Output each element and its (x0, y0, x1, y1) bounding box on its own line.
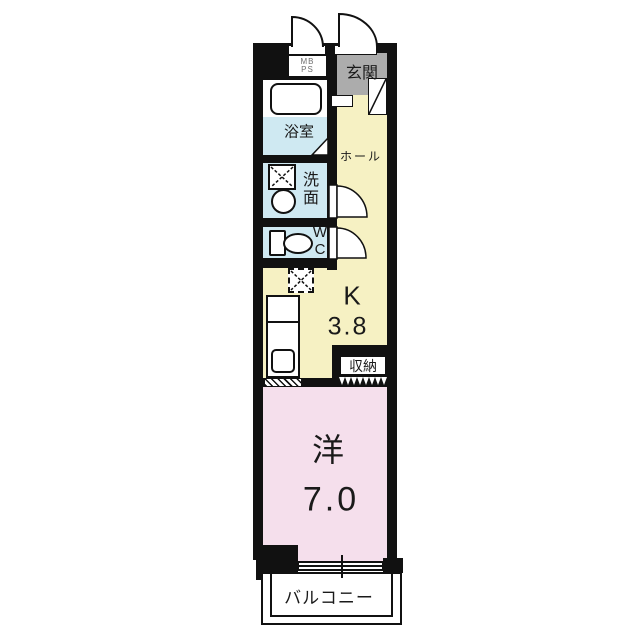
wc-label: W C (313, 224, 327, 258)
entrance-label: 玄関 (346, 59, 378, 83)
washroom-label-char1: 洗 (303, 172, 319, 190)
wc-door-swing-icon (337, 228, 366, 258)
bathroom-label: 浴室 (284, 121, 314, 142)
washroom-door-panel (329, 185, 337, 218)
western-room-size-label: 7.0 (303, 481, 359, 520)
bathroom-door-icon (312, 138, 328, 155)
washroom-label: 洗 面 (303, 172, 319, 208)
storage-folding-door-icon (339, 377, 387, 385)
balcony-label: バルコニー (284, 584, 374, 609)
western-room-label: 洋 (312, 425, 344, 471)
wc-label-line2: C (313, 241, 327, 258)
plan-symbols (0, 0, 640, 640)
entrance-door-swing-icon (339, 14, 377, 47)
refrigerator-x-icon (291, 271, 311, 290)
washroom-door-swing-icon (337, 186, 367, 217)
kitchen-size-label: 3.8 (328, 313, 369, 342)
wc-door-panel (329, 227, 337, 259)
kitchen-label: K (343, 281, 360, 312)
shoe-cabinet-diagonal (369, 79, 386, 114)
meter-box-door-swing-icon (292, 17, 323, 47)
wc-label-line1: W (313, 224, 327, 241)
washing-machine-x-icon (271, 167, 293, 187)
hall-label: ホール (340, 148, 382, 165)
floor-plan: MB PS 収納 (0, 0, 640, 640)
washroom-label-char2: 面 (303, 190, 319, 208)
